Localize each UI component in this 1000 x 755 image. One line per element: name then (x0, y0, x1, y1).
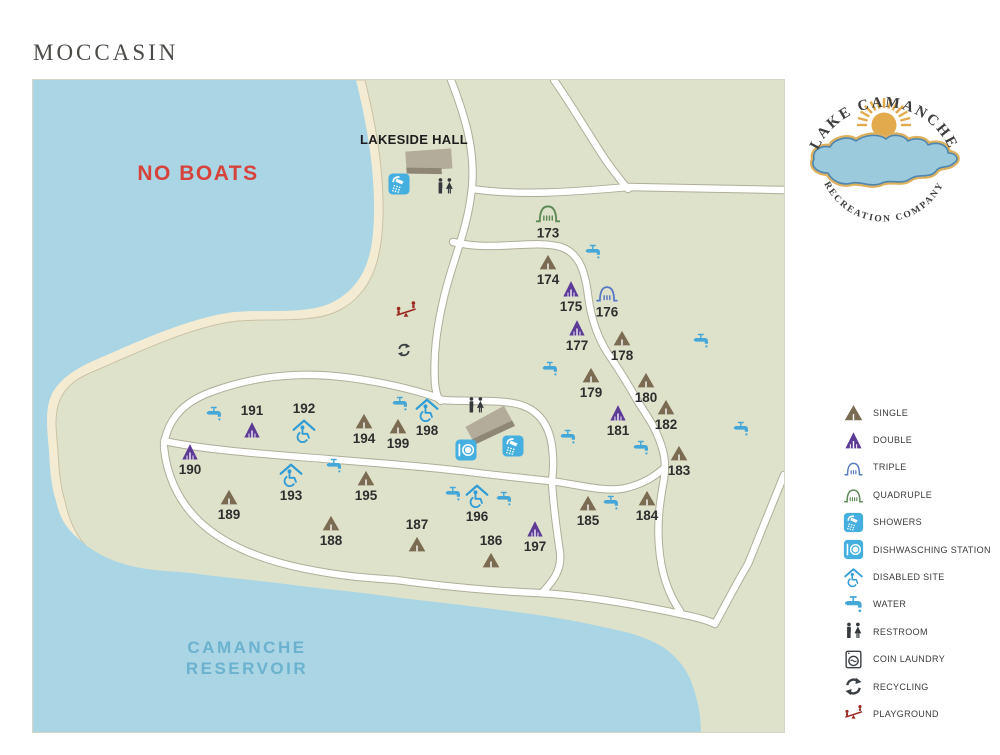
reservoir-label-line2: RESERVOIR (186, 659, 308, 678)
lake-camanche-logo: LAKE CAMANCHE RECREATION COMPANY (797, 61, 971, 237)
site-196-label: 196 (466, 509, 489, 524)
site-191-label: 191 (241, 403, 264, 418)
site-190-label: 190 (179, 462, 202, 477)
site-178-label: 178 (611, 348, 634, 363)
site-180-label: 180 (635, 390, 658, 405)
reservoir-label-line1: CAMANCHE (187, 638, 306, 657)
campground-map-page: MOCCASIN (0, 0, 1000, 755)
site-197-label: 197 (524, 539, 547, 554)
site-194-label: 194 (353, 431, 376, 446)
legend-label: DISABLED SITE (873, 572, 945, 582)
legend-item-restroom: RESTROOM (841, 618, 999, 645)
no-boats-label: NO BOATS (137, 162, 258, 185)
site-193-label: 193 (280, 488, 303, 503)
site-192-label: 192 (293, 401, 316, 416)
triple-site-icon (841, 457, 865, 478)
site-174-label: 174 (537, 272, 560, 287)
single-tent-icon (841, 402, 865, 423)
site-188-label: 188 (320, 533, 343, 548)
site-195-label: 195 (355, 488, 378, 503)
legend-label: RESTROOM (873, 627, 928, 637)
site-177-label: 177 (566, 338, 589, 353)
site-187-label: 187 (406, 517, 429, 532)
site-199-label: 199 (387, 436, 410, 451)
map-svg: NO BOATS CAMANCHE RESERVOIR LAKESIDE HAL… (33, 80, 784, 732)
site-181-label: 181 (607, 423, 630, 438)
double-tent-icon (841, 430, 865, 451)
water-faucet-icon (841, 594, 865, 615)
playground-icon (841, 703, 865, 724)
site-175-label: 175 (560, 299, 583, 314)
legend-item-water: WATER (841, 591, 999, 618)
site-184-label: 184 (636, 508, 659, 523)
legend-label: TRIPLE (873, 462, 907, 472)
legend-item-recycling: RECYCLING (841, 673, 999, 700)
showers-icon (841, 512, 865, 533)
legend-item-disabled-site: DISABLED SITE (841, 563, 999, 590)
quadruple-site-icon (841, 484, 865, 505)
shower-icon (502, 435, 523, 456)
legend-item-triple: TRIPLE (841, 454, 999, 481)
legend-item-single: SINGLE (841, 399, 999, 426)
logo-bottom-text: RECREATION COMPANY (821, 180, 946, 224)
legend-label: RECYCLING (873, 682, 929, 692)
site-176-label: 176 (596, 305, 619, 320)
site-173-label: 173 (537, 226, 560, 241)
legend-item-showers: SHOWERS (841, 509, 999, 536)
shower-icon (388, 173, 409, 194)
site-183-label: 183 (668, 463, 691, 478)
disabled-site-icon (841, 567, 865, 588)
legend-item-double: DOUBLE (841, 426, 999, 453)
page-title: MOCCASIN (33, 40, 178, 66)
site-189-label: 189 (218, 507, 241, 522)
recycling-icon (841, 676, 865, 697)
legend-label: SHOWERS (873, 517, 922, 527)
dishwashing-icon (455, 439, 476, 460)
coin-laundry-icon (841, 649, 865, 670)
legend-label: COIN LAUNDRY (873, 654, 945, 664)
lakeside-hall-label: LAKESIDE HALL (360, 132, 468, 147)
legend-item-dishwasching-station: DISHWASCHING STATION (841, 536, 999, 563)
dishwashing-station-icon (841, 539, 865, 560)
site-185-label: 185 (577, 513, 600, 528)
restroom-icon (841, 621, 865, 642)
site-198-label: 198 (416, 423, 439, 438)
legend-item-playground: PLAYGROUND (841, 700, 999, 727)
legend-item-quadruple: QUADRUPLE (841, 481, 999, 508)
site-179-label: 179 (580, 385, 603, 400)
legend-label: QUADRUPLE (873, 490, 932, 500)
legend-label: SINGLE (873, 408, 908, 418)
legend-label: PLAYGROUND (873, 709, 939, 719)
site-182-label: 182 (655, 417, 678, 432)
legend-item-coin-laundry: COIN LAUNDRY (841, 646, 999, 673)
logo-lake-icon (813, 135, 957, 184)
site-186-label: 186 (480, 533, 503, 548)
map-area: NO BOATS CAMANCHE RESERVOIR LAKESIDE HAL… (32, 79, 785, 733)
map-legend: SINGLEDOUBLETRIPLEQUADRUPLESHOWERSDISHWA… (841, 399, 999, 728)
legend-label: DOUBLE (873, 435, 912, 445)
legend-label: DISHWASCHING STATION (873, 545, 991, 555)
legend-label: WATER (873, 599, 906, 609)
